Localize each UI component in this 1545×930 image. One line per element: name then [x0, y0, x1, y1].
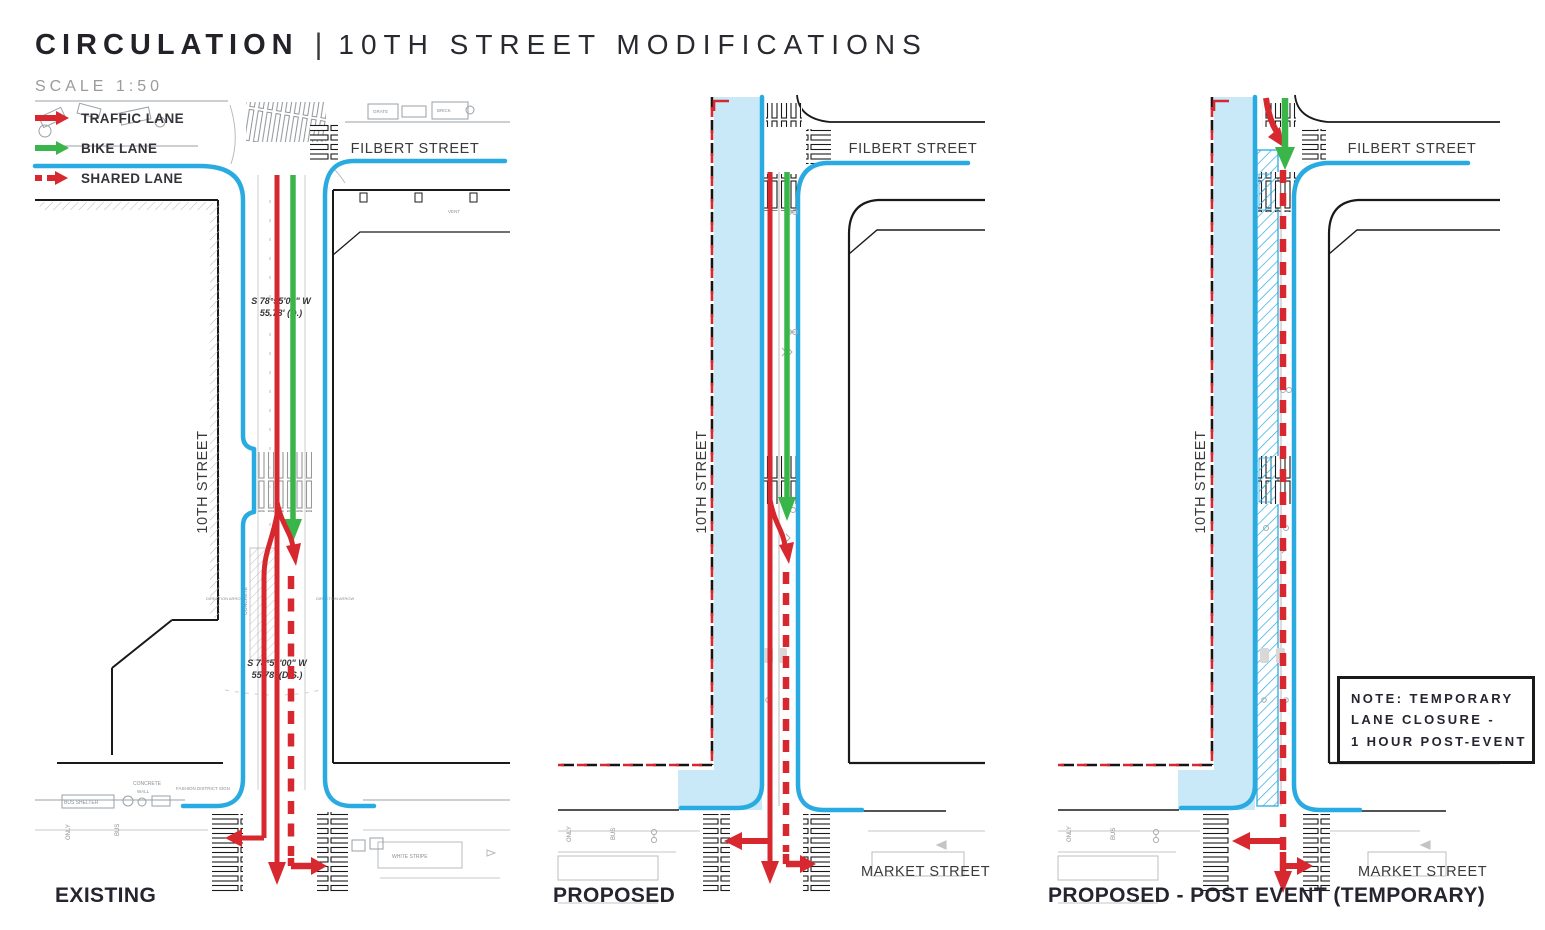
plaza-fill: [678, 97, 762, 810]
survey-text-upper-1: S 78°55'00" W: [251, 296, 312, 306]
survey-text-upper-2: 55.78' (D.): [260, 308, 302, 318]
crosswalk-market-east: [317, 812, 348, 892]
temporary-closure-note: NOTE: TEMPORARY LANE CLOSURE - 1 HOUR PO…: [1337, 676, 1535, 764]
left-turn-arrowhead: [1232, 832, 1250, 850]
micro-label-only: ONLY: [66, 824, 72, 840]
crosswalk-filbert-east: [1302, 129, 1326, 163]
micro-label-grate: GRATE: [373, 109, 388, 114]
traffic-lane-arrowhead: [268, 862, 286, 885]
panel-caption-post-event: PROPOSED - POST EVENT (TEMPORARY): [1048, 884, 1485, 908]
street-label-filbert: FILBERT STREET: [849, 141, 978, 157]
micro-label-direction-arrow-left: DIRECTION ARROW: [206, 596, 244, 601]
wall-hatch: [210, 203, 220, 618]
legend-item-bike-lane: BIKE LANE: [35, 140, 184, 156]
legend-label-shared-lane: SHARED LANE: [81, 171, 183, 186]
curb-west: [35, 166, 254, 806]
micro-label-concrete-2: CONCRETE: [133, 781, 162, 787]
circulation-sheet: GRATE BRICK VENT CONCRETE CONCRETE DIREC…: [0, 0, 1545, 930]
crosswalk-market-east: [1303, 814, 1330, 894]
street-label-10th: 10TH STREET: [1193, 430, 1209, 533]
plaza-fill: [1178, 97, 1255, 810]
micro-label-bus: BUS: [611, 828, 617, 840]
lane-markings: [225, 175, 327, 885]
crosswalk-market-east: [803, 814, 830, 894]
panel-caption-proposed: PROPOSED: [553, 884, 675, 908]
crosswalk-filbert-east: [310, 122, 338, 162]
curb-east: [798, 163, 968, 810]
plan-drawing: GRATE BRICK VENT CONCRETE CONCRETE DIREC…: [0, 0, 1545, 930]
shared-lane-arrow-icon: [35, 170, 71, 186]
street-label-filbert: FILBERT STREET: [1348, 141, 1477, 157]
crosswalk-midblock-hatched: [1259, 458, 1271, 502]
street-label-market: MARKET STREET: [1358, 864, 1487, 880]
traffic-lane-arrow-icon: [35, 110, 71, 126]
micro-label-only: ONLY: [1067, 826, 1073, 842]
legend: TRAFFIC LANE BIKE LANE SHARED LANE: [35, 110, 184, 200]
crosswalk-filbert-east: [806, 129, 831, 164]
street-label-10th: 10TH STREET: [195, 430, 211, 533]
crosswalk-market-west: [703, 814, 730, 894]
micro-label-vent: VENT: [448, 209, 460, 214]
micro-label-bus-shelter: BUS SHELTER: [64, 800, 99, 806]
title-secondary: 10TH STREET MODIFICATIONS: [338, 29, 927, 61]
shared-lane-elbow: [291, 858, 311, 866]
wall-hatch-top: [40, 202, 210, 210]
street-label-filbert: FILBERT STREET: [351, 141, 480, 157]
micro-label-direction-arrow-right: DIRECTION ARROW: [316, 596, 354, 601]
panel-caption-existing: EXISTING: [55, 884, 156, 908]
legend-item-traffic-lane: TRAFFIC LANE: [35, 110, 184, 126]
title-divider: |: [315, 28, 323, 62]
crosswalk-midblock: [254, 452, 312, 512]
crosswalk-market-west: [1203, 814, 1230, 894]
bike-lane-arrow-icon: [35, 140, 71, 156]
micro-label-brick: BRICK: [437, 108, 451, 113]
micro-label-bus: BUS: [1111, 828, 1117, 840]
micro-label-fashion-sign: FASHION DISTRICT SIGN: [176, 786, 230, 791]
street-label-10th: 10TH STREET: [694, 430, 710, 533]
legend-label-bike-lane: BIKE LANE: [81, 141, 157, 156]
title-primary: CIRCULATION: [35, 29, 299, 62]
note-line-2: LANE CLOSURE -: [1351, 709, 1521, 730]
traffic-lane-arrowhead: [761, 861, 779, 884]
lane-shift-arrowhead: [779, 542, 794, 564]
panel-post-event: ONLY BUS: [1058, 95, 1500, 903]
lane-shift-arrowhead: [286, 543, 301, 566]
sheet-title: CIRCULATION | 10TH STREET MODIFICATIONS: [35, 28, 928, 62]
micro-label-wall: WALL: [137, 789, 150, 794]
note-line-1: NOTE: TEMPORARY: [1351, 688, 1521, 709]
street-label-market: MARKET STREET: [861, 864, 990, 880]
note-line-3: 1 HOUR POST-EVENT: [1351, 731, 1521, 752]
bike-lane-arrowhead: [778, 497, 796, 521]
crosswalk-filbert-north: [766, 103, 802, 127]
crosswalk-10th-top-hatched: [1259, 174, 1271, 210]
micro-label-white-stripe: WHITE STRIPE: [392, 854, 428, 860]
legend-item-shared-lane: SHARED LANE: [35, 170, 184, 186]
panel-proposed: ONLY BUS: [558, 95, 990, 903]
shared-lane-elbow: [786, 854, 800, 864]
scale-label: SCALE 1:50: [35, 78, 163, 96]
crosswalk-market-west: [212, 814, 243, 892]
panel-existing: GRATE BRICK VENT CONCRETE CONCRETE DIREC…: [35, 101, 510, 892]
curb-east: [325, 161, 505, 806]
legend-label-traffic-lane: TRAFFIC LANE: [81, 111, 184, 126]
micro-label-bus: BUS: [115, 824, 121, 836]
micro-label-only: ONLY: [567, 826, 573, 842]
